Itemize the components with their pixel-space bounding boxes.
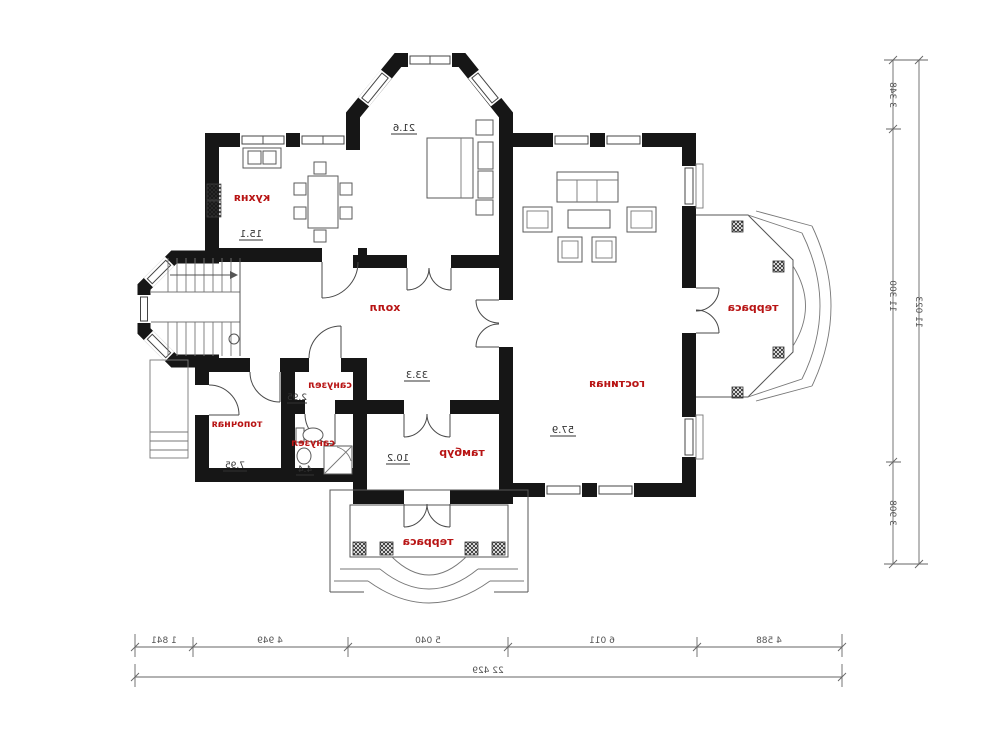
room-label-wc-top: санузел (308, 380, 352, 391)
dim-right-2: 11 300 (887, 280, 897, 312)
room-area-living: 57.9 (552, 425, 574, 436)
terrace-column (773, 347, 784, 358)
dim-right-3: 3 908 (887, 500, 897, 526)
dining-table (308, 176, 338, 228)
dim-bottom-total: 22 429 (472, 666, 504, 676)
terrace-column (732, 221, 743, 232)
terrace-column (773, 261, 784, 272)
room-label-hall: холл (370, 301, 401, 314)
terrace-column (732, 387, 743, 398)
room-area-kitchen: 15.1 (240, 229, 262, 240)
nightstand (476, 200, 493, 215)
terrace-column (492, 542, 505, 555)
floor-plan-sheet: кухня 15.1 21.6 холл 33.3 гостиная 57.9 … (0, 0, 1000, 750)
room-area-wc-bottom: 4.4 (298, 465, 313, 475)
terrace-column (465, 542, 478, 555)
dim-right-1: 3 348 (887, 82, 897, 108)
room-area-hall: 33.3 (406, 370, 428, 381)
room-area-bedroom: 21.6 (393, 123, 415, 134)
bedroom-bay-wall (353, 60, 506, 150)
room-area-tambour: 10.2 (387, 453, 409, 464)
room-area-wc-top: 2.95 (287, 393, 307, 403)
terrace-column (380, 542, 393, 555)
walls (144, 60, 696, 504)
room-label-kitchen: кухня (234, 191, 270, 204)
dim-bottom-3: 5 040 (415, 636, 441, 646)
bed (427, 138, 473, 198)
room-area-boiler: 7.95 (225, 461, 245, 471)
coffee-table (568, 210, 610, 228)
room-label-terrace-bottom: терраса (403, 535, 454, 548)
room-label-wc-bottom: санузел (291, 438, 335, 449)
dim-bottom-2: 4 949 (257, 636, 283, 646)
dim-bottom-5: 4 588 (756, 636, 782, 646)
stove-icon (207, 184, 221, 200)
room-label-living: гостиная (589, 377, 645, 390)
room-label-terrace-right: терраса (728, 301, 779, 314)
room-label-tambour: тамбур (439, 446, 485, 459)
side-entrance-steps (150, 360, 188, 458)
room-label-boiler: топочная (212, 419, 263, 430)
sofa (557, 172, 618, 202)
furniture (207, 120, 656, 474)
nightstand (476, 120, 493, 135)
stair-direction-arrow (230, 271, 238, 279)
stove-icon (207, 201, 221, 217)
floor-plan-drawing: кухня 15.1 21.6 холл 33.3 гостиная 57.9 … (0, 0, 1000, 750)
terrace-column (353, 542, 366, 555)
dim-bottom-4: 6 011 (589, 636, 615, 646)
dim-right-total: 11 023 (913, 296, 923, 328)
dim-bottom-1: 1 841 (151, 636, 177, 646)
sink-icon (297, 448, 311, 464)
